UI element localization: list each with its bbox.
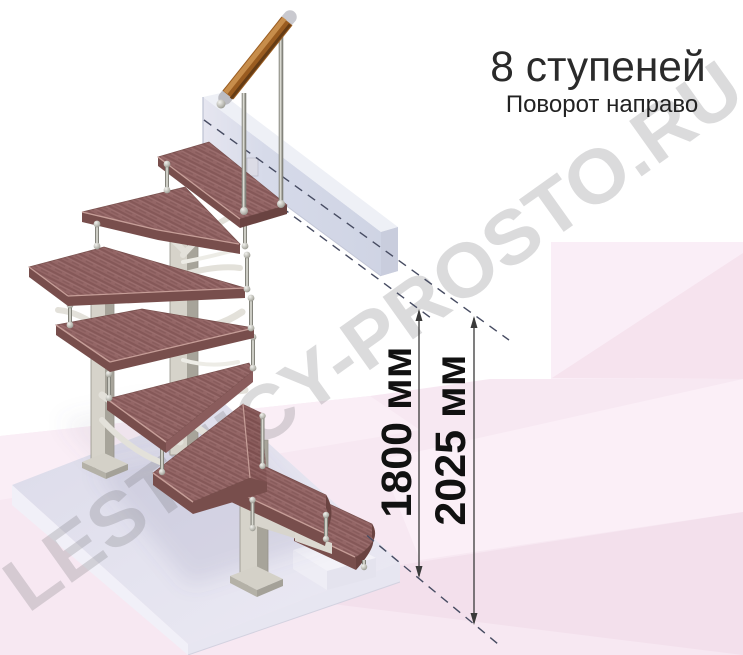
svg-text:1800 мм: 1800 мм: [373, 346, 421, 517]
svg-text:Поворот направо: Поворот направо: [506, 91, 698, 118]
svg-text:2025 мм: 2025 мм: [427, 354, 475, 525]
svg-text:8 ступеней: 8 ступеней: [490, 44, 705, 91]
